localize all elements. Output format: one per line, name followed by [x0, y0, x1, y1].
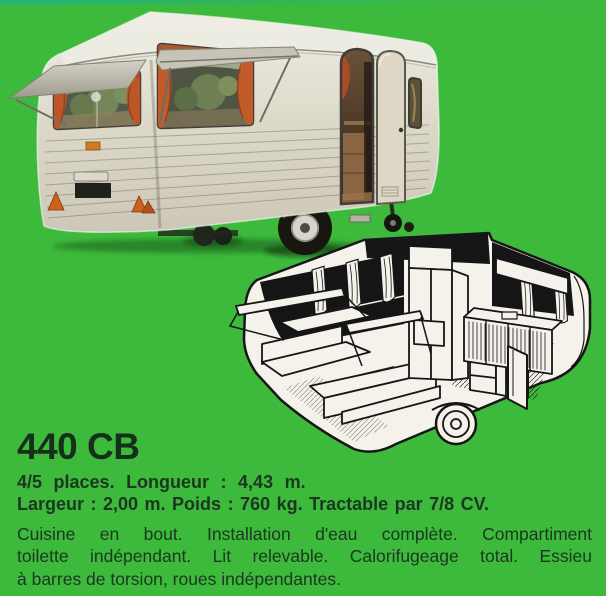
photo-license-plate: [75, 183, 111, 198]
description-line-1: Cuisine en bout. Installation d'eau comp…: [17, 523, 592, 545]
photo-badge: [86, 142, 100, 150]
photo-front-window: [409, 78, 421, 128]
door-handle: [399, 128, 403, 132]
spec-line-places-length: 4/5 places. Longueur : 4,43 m.: [17, 471, 592, 494]
model-info: 440 CB 4/5 places. Longueur : 4,43 m. La…: [17, 428, 592, 590]
photo-door-panel: [377, 51, 405, 204]
description: Cuisine en bout. Installation d'eau comp…: [17, 523, 592, 590]
brochure-page: 440 CB 4/5 places. Longueur : 4,43 m. La…: [0, 0, 606, 596]
description-line-2: toilette indépendant. Lit relevable. Cal…: [17, 545, 592, 567]
diagram-open-door: [508, 346, 527, 409]
photo-door-opening: [341, 49, 373, 205]
photo-entry-step: [350, 215, 370, 222]
model-name: 440 CB: [17, 428, 592, 466]
description-line-3: à barres de torsion, roues indépendantes…: [17, 568, 592, 590]
spec-line-width-weight: Largeur : 2,00 m. Poids : 760 kg. Tracta…: [17, 493, 592, 516]
caravan-photo: [8, 4, 454, 260]
photo-bumper: [74, 172, 108, 181]
